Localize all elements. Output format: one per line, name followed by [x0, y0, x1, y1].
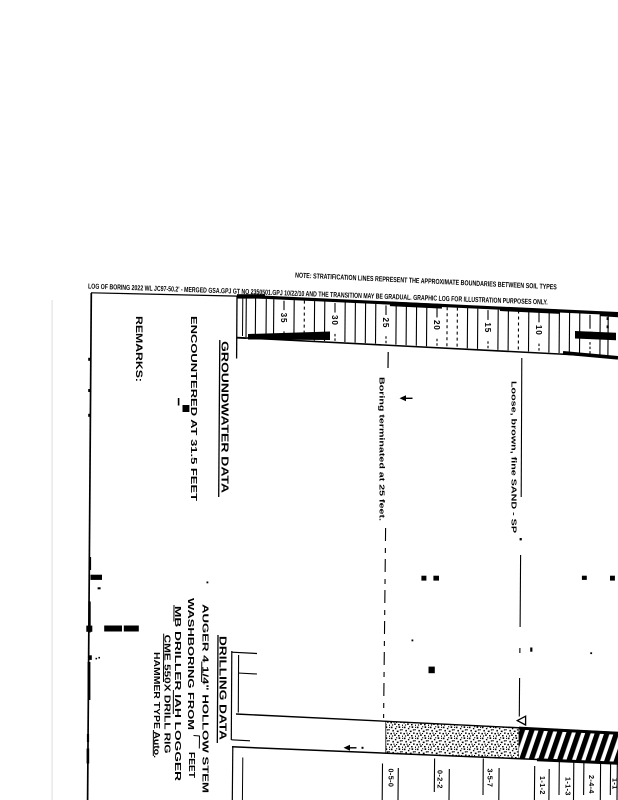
svg-text:3-5-7: 3-5-7 — [485, 769, 494, 788]
svg-text:20: 20 — [432, 320, 441, 331]
svg-text:REMARKS:: REMARKS: — [133, 316, 144, 382]
svg-text:WASHBORING FROM: WASHBORING FROM — [186, 598, 195, 730]
svg-text:2-4-4: 2-4-4 — [587, 775, 596, 794]
svg-text:10: 10 — [534, 325, 543, 336]
svg-text:35: 35 — [279, 313, 288, 324]
svg-text:15: 15 — [483, 322, 492, 333]
svg-text:30: 30 — [330, 315, 339, 326]
svg-text:Boring terminated at 25 feet.: Boring terminated at 25 feet. — [378, 377, 387, 521]
svg-text:0-5-0: 0-5-0 — [386, 769, 395, 788]
svg-text:AUGER 4 1/4" HOLLOW STEM: AUGER 4 1/4" HOLLOW STEM — [201, 604, 210, 793]
svg-text:1-1: 1-1 — [611, 778, 618, 790]
svg-text:ENCOUNTERED AT 31.5 FEET: ENCOUNTERED AT 31.5 FEET — [189, 316, 199, 502]
svg-text:NOTE: STRATIFICATION LINES REP: NOTE: STRATIFICATION LINES REPRESENT THE… — [295, 271, 557, 292]
svg-text:1-1-2: 1-1-2 — [538, 776, 547, 795]
svg-text:MB DRILLER IAH LOGGER: MB DRILLER IAH LOGGER — [173, 606, 182, 782]
svg-text:Loose, brown, fine SAND - SP: Loose, brown, fine SAND - SP — [510, 381, 519, 533]
svg-text:1-1-3: 1-1-3 — [564, 777, 573, 796]
svg-text:25: 25 — [381, 317, 390, 328]
svg-text:0-2-2: 0-2-2 — [436, 770, 445, 789]
svg-text:FEET: FEET — [187, 752, 196, 778]
